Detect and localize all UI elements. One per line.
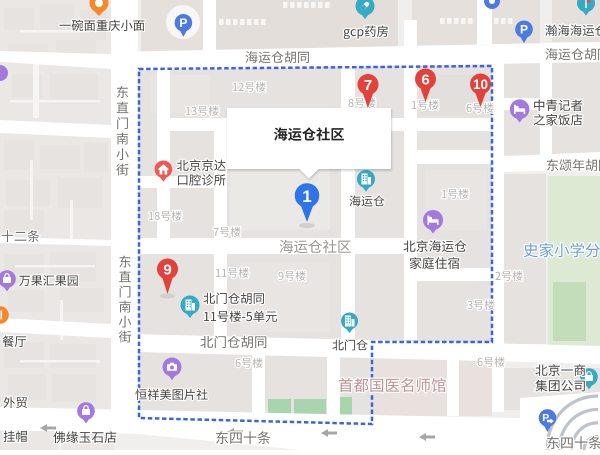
svg-text:10: 10 <box>473 77 488 92</box>
svg-text:P: P <box>520 23 528 37</box>
svg-text:9: 9 <box>163 262 171 279</box>
svg-text:7: 7 <box>364 77 372 94</box>
svg-text:1: 1 <box>302 187 311 206</box>
svg-text:P: P <box>179 16 187 30</box>
svg-text:6: 6 <box>421 72 429 89</box>
svg-text:P: P <box>542 412 549 424</box>
